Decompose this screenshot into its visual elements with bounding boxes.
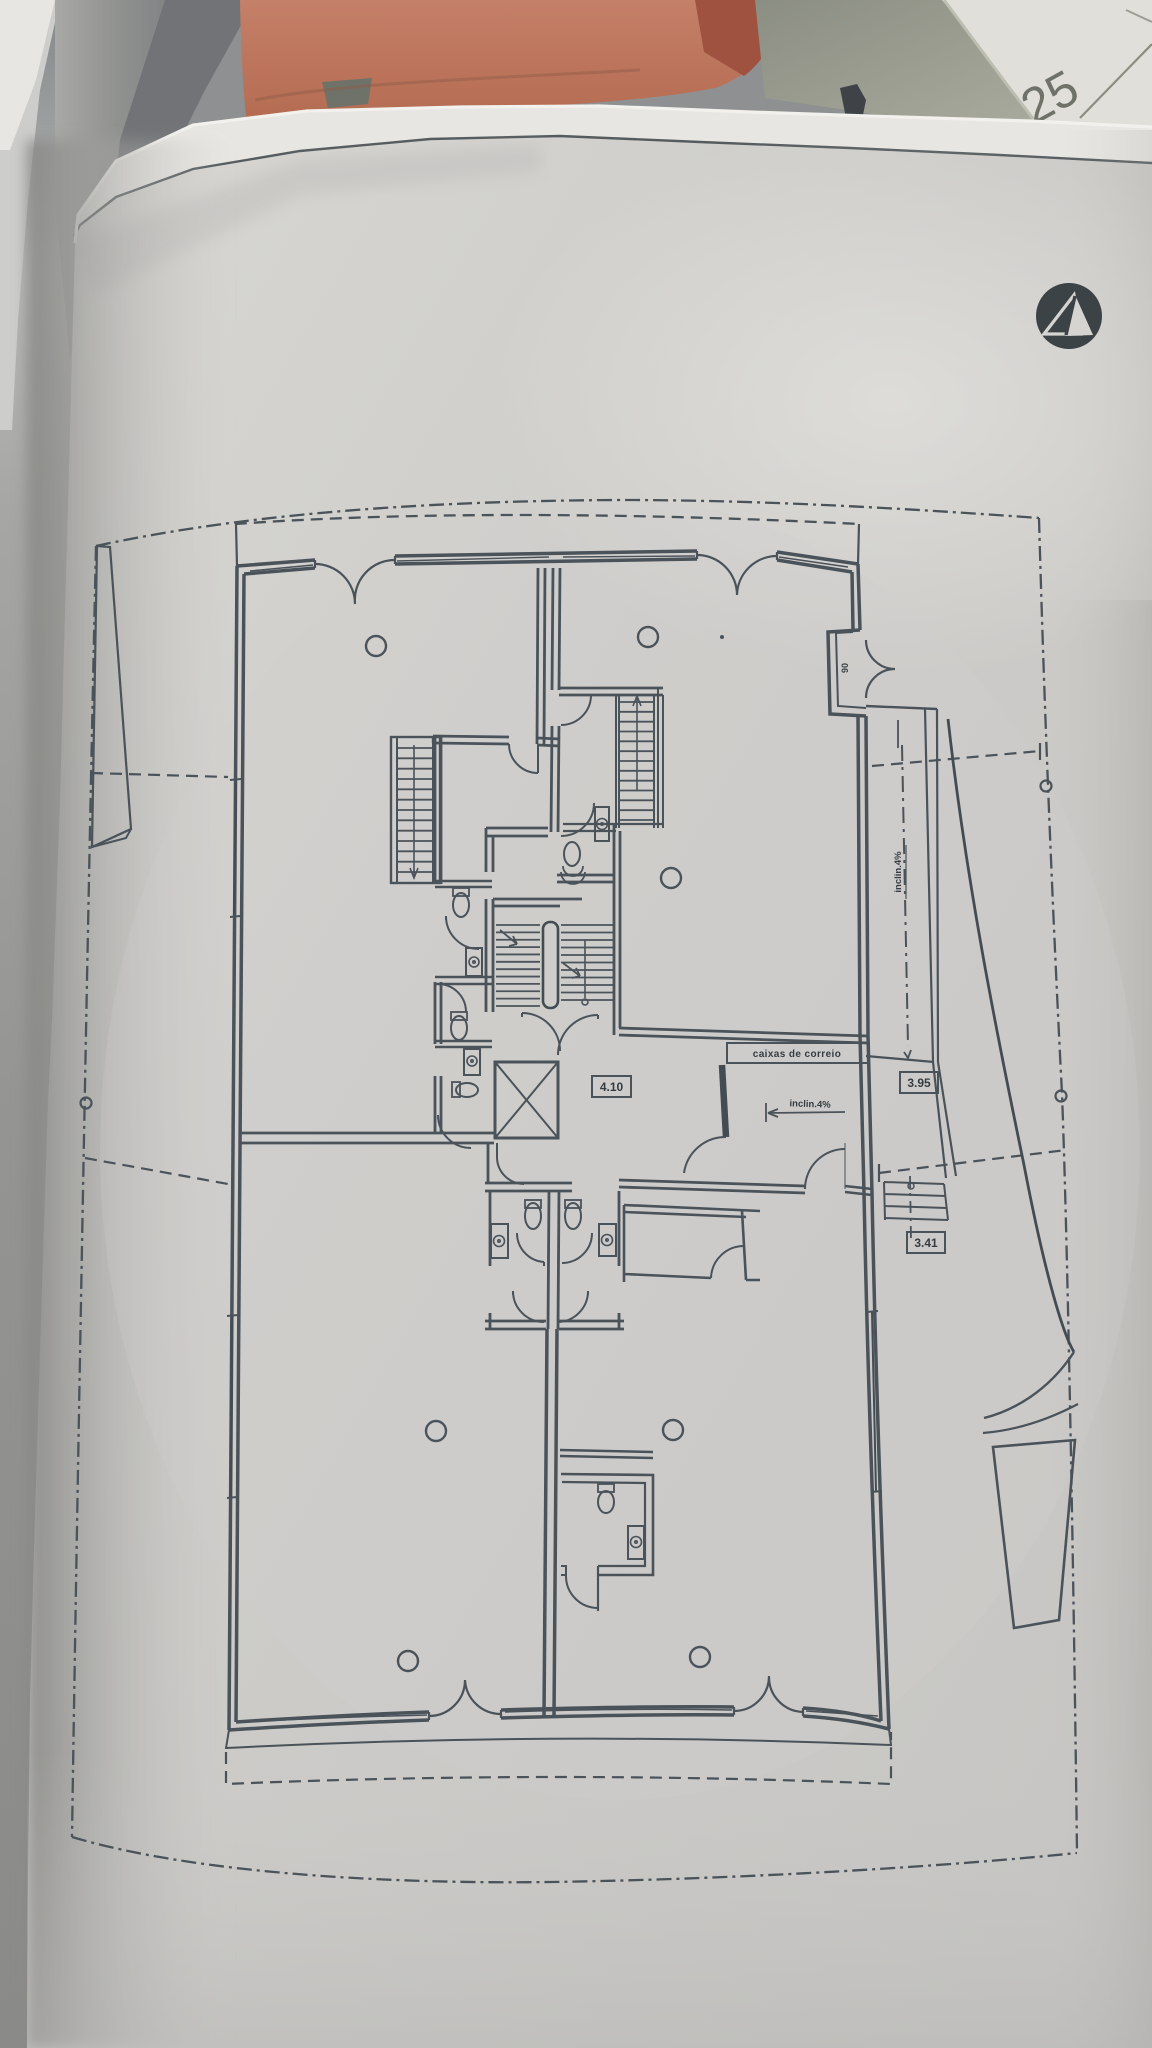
svg-text:90: 90 — [840, 663, 850, 673]
svg-text:inclin.4%: inclin.4% — [893, 851, 904, 893]
svg-text:3.95: 3.95 — [907, 1076, 931, 1090]
svg-text:3.41: 3.41 — [914, 1236, 938, 1250]
svg-text:caixas de correio: caixas de correio — [753, 1049, 842, 1060]
svg-text:4.10: 4.10 — [600, 1080, 624, 1094]
svg-text:inclin.4%: inclin.4% — [789, 1098, 831, 1110]
